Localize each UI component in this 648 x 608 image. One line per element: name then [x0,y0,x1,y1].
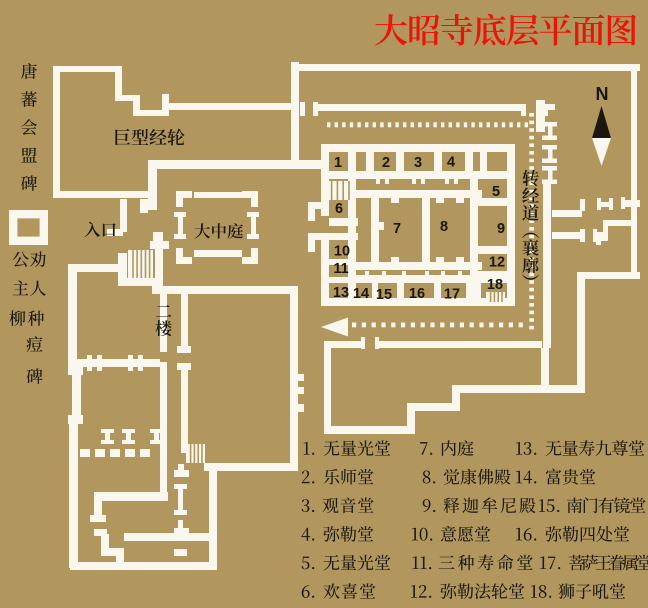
svg-text:3: 3 [414,155,422,171]
svg-text:17: 17 [444,287,460,303]
svg-text:9: 9 [497,221,505,237]
svg-text:5: 5 [492,184,500,200]
svg-text:1: 1 [334,155,342,171]
svg-text:N: N [596,84,609,104]
svg-text:11: 11 [333,261,348,277]
svg-text:4: 4 [447,155,455,171]
svg-text:14: 14 [353,286,369,302]
svg-text:16: 16 [409,286,425,302]
svg-text:13: 13 [333,285,349,301]
svg-text:2: 2 [382,155,390,171]
svg-text:6: 6 [335,201,343,217]
svg-text:7: 7 [393,221,401,237]
svg-text:18: 18 [487,277,503,293]
svg-text:12: 12 [489,255,505,271]
svg-text:15: 15 [376,287,392,303]
svg-text:8: 8 [440,219,448,235]
svg-text:10: 10 [334,244,350,260]
